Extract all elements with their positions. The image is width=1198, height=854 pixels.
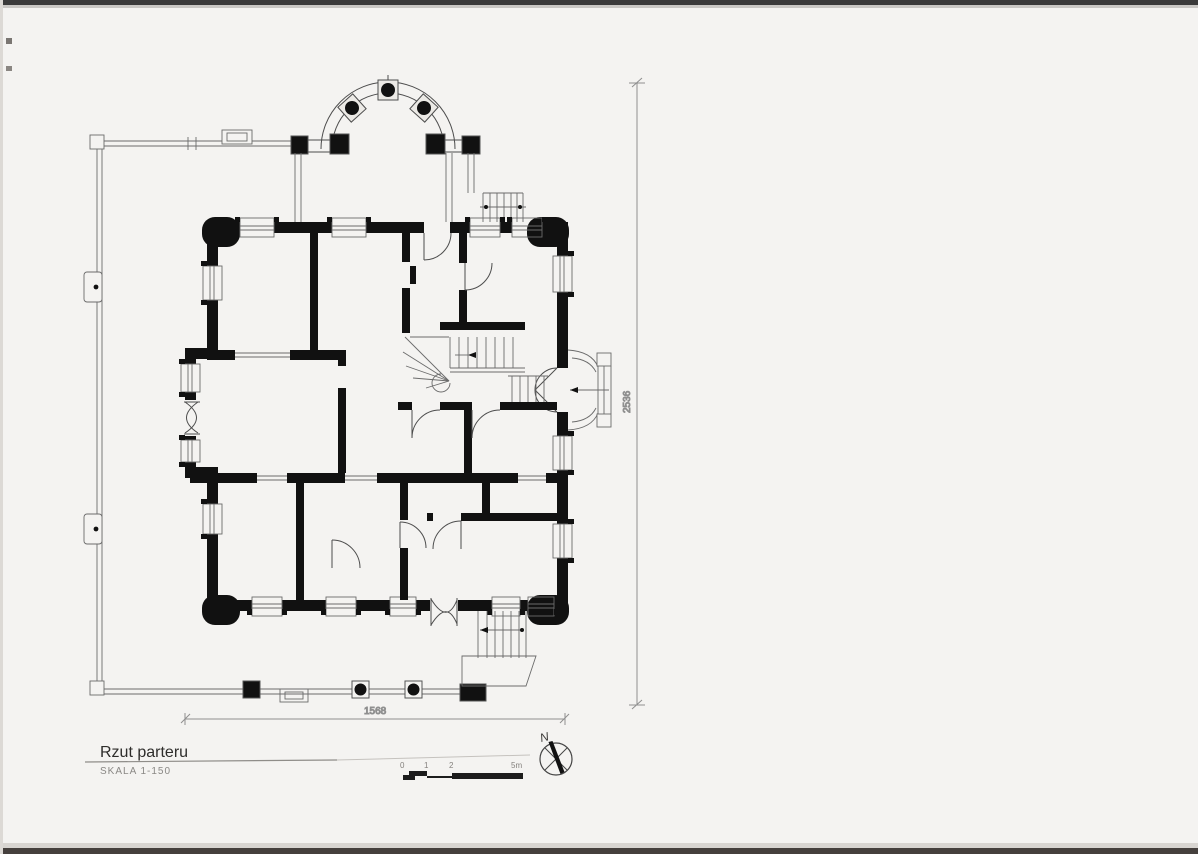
drawing-scale-label: SKALA 1-150 bbox=[100, 766, 171, 777]
drawing-title: Rzut parteru bbox=[100, 744, 188, 761]
dimension-value-horizontal: 1568 bbox=[364, 706, 387, 717]
scale-bar-label-0: 0 bbox=[400, 761, 405, 770]
dimension-value-vertical: 2536 bbox=[622, 390, 633, 413]
scale-bar-label-1: 1 bbox=[424, 761, 429, 770]
scale-bar-label-2: 2 bbox=[449, 761, 454, 770]
scanned-floor-plan-page: 1568 2536 Rzut parteru SKALA 1-150 0 1 2… bbox=[0, 0, 1198, 854]
floor-plan-drawing: 1568 2536 Rzut parteru SKALA 1-150 0 1 2… bbox=[0, 0, 1198, 854]
scale-bar-label-5m: 5m bbox=[511, 761, 522, 770]
